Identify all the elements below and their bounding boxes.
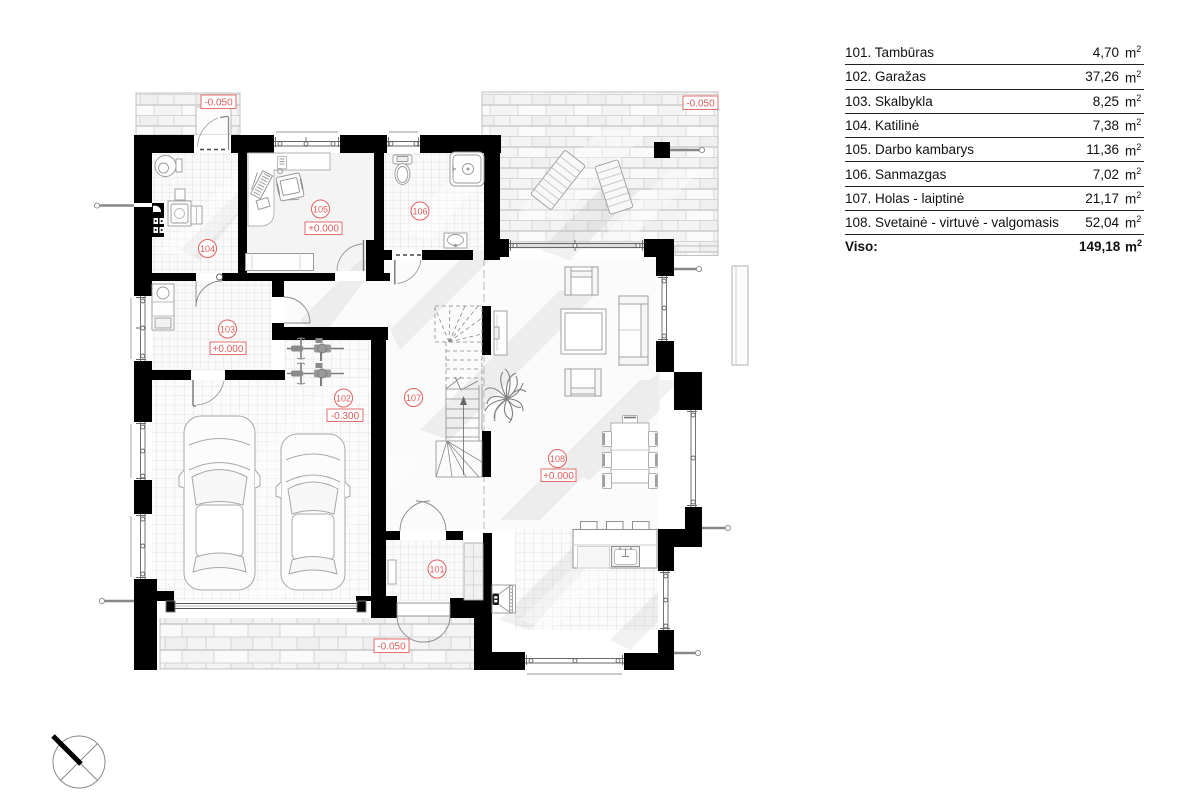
svg-text:108: 108 — [550, 454, 565, 464]
svg-text:106: 106 — [412, 207, 427, 217]
svg-text:-0.050: -0.050 — [686, 99, 715, 110]
svg-text:+0.000: +0.000 — [213, 344, 244, 355]
svg-text:103: 103 — [220, 325, 235, 335]
svg-text:107: 107 — [406, 393, 421, 403]
svg-text:+0.000: +0.000 — [543, 471, 574, 482]
svg-text:+0.000: +0.000 — [308, 224, 339, 235]
svg-text:-0.300: -0.300 — [331, 411, 360, 422]
svg-text:-0.050: -0.050 — [377, 642, 406, 653]
svg-text:105: 105 — [313, 205, 328, 215]
svg-text:102: 102 — [336, 394, 351, 404]
svg-text:101: 101 — [429, 565, 444, 575]
svg-text:-0.050: -0.050 — [204, 98, 233, 109]
svg-text:104: 104 — [200, 244, 215, 254]
